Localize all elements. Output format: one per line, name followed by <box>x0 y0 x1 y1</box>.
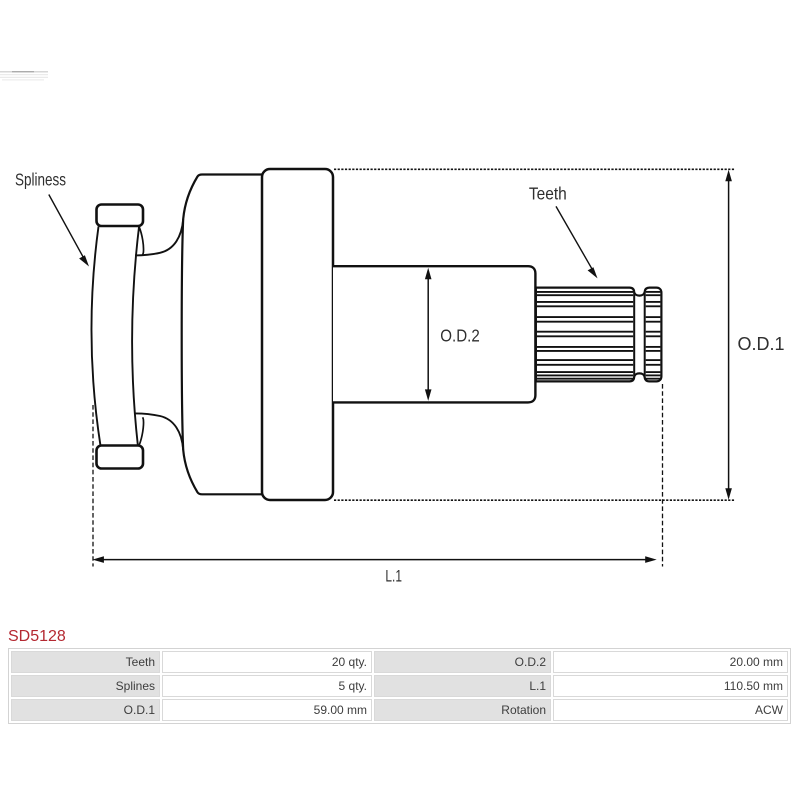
svg-text:Spliness: Spliness <box>15 171 66 190</box>
svg-text:O.D.1: O.D.1 <box>738 334 785 354</box>
svg-text:O.D.2: O.D.2 <box>440 325 479 346</box>
svg-text:Teeth: Teeth <box>529 183 567 203</box>
svg-text:L.1: L.1 <box>385 567 402 586</box>
